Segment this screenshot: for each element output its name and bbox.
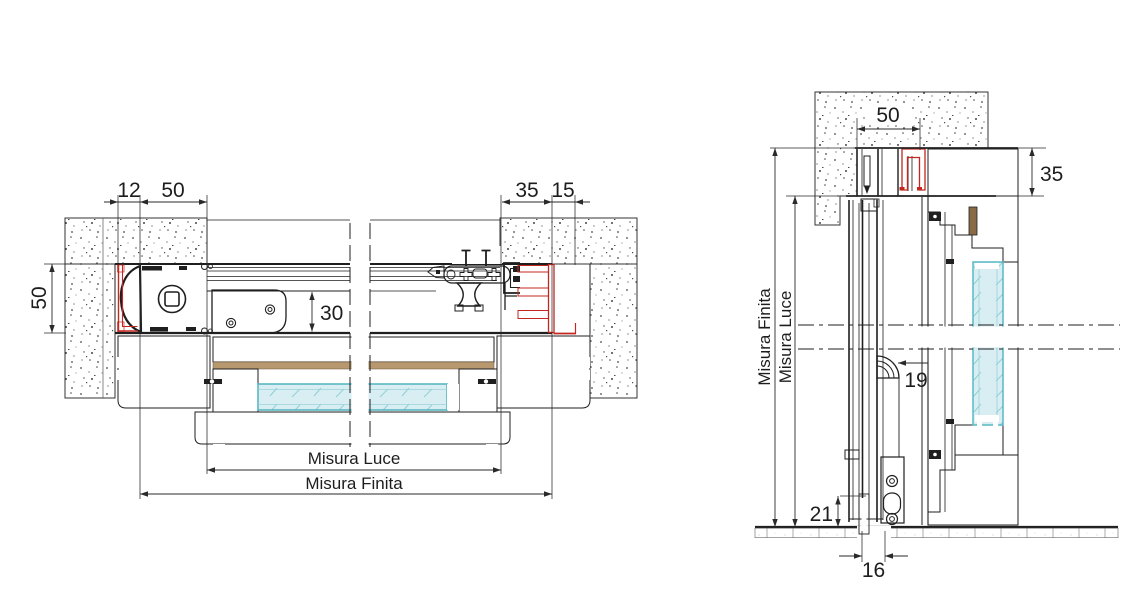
dim-floor-channel-label: 16 [862,559,885,582]
roller-box [121,264,213,335]
dim-bottom-gap-label: 21 [810,503,833,526]
break-gap-left [352,222,369,448]
dim-head-height-label: 35 [1040,163,1063,186]
clear-opening-label-left: Misura Luce [308,449,401,468]
leaf-stile-right [459,369,497,412]
wood-sill-block [928,455,1018,525]
brush-seal [457,283,481,306]
left-section-view: 12 50 35 15 50 30 Misura Luce Misura Fin… [28,179,637,499]
carriage [881,457,904,525]
dim-jamb-label: 35 [515,179,538,202]
dim-offset-label: 12 [117,179,140,202]
head-lines [846,148,1018,196]
dim-frame-depth-label: 50 [28,286,51,309]
drawing-page: 12 50 35 15 50 30 Misura Luce Misura Fin… [0,0,1125,607]
finished-size-label-right: Misura Finita [755,288,774,386]
wood-head [928,149,1018,196]
strike-plate-top [969,207,977,235]
wood-casing [1003,262,1018,455]
wood-jamb-right [497,336,590,408]
break-gap-right [884,327,1125,348]
dim-roller-offset-label: 19 [904,369,927,392]
right-section-view: 50 35 Misura Finita Misura Luce 19 21 16 [755,92,1125,582]
wood-sash-bottom [955,425,1003,455]
dim-box-depth-label: 50 [161,179,184,202]
red-frame-profile [518,265,576,334]
dim-track-width-label: 50 [876,104,899,127]
carriage-wheel [884,493,901,514]
wood-jamb-left [118,336,210,408]
anti-jump-pin [864,156,870,186]
roller-detail [877,356,899,378]
leaf-stile-left [213,369,258,412]
finished-size-label-left: Misura Finita [305,474,403,493]
dim-reveal-label: 15 [551,179,574,202]
pocket-bracket [212,290,286,333]
clear-opening-label-right: Misura Luce [776,291,795,384]
dim-cavity-label: 30 [320,302,343,325]
technical-drawing: 12 50 35 15 50 30 Misura Luce Misura Fin… [0,0,1125,607]
